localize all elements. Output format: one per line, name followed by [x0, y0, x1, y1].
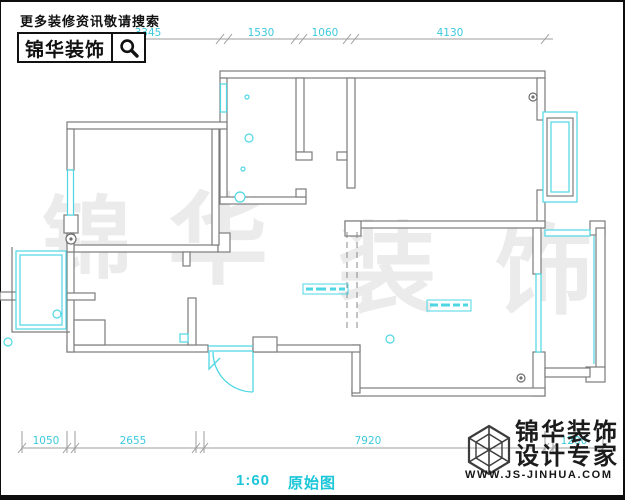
- search-tagline: 更多装修资讯敬请搜索: [20, 11, 160, 30]
- dim-value: 2655: [120, 435, 147, 447]
- search-icon[interactable]: [111, 34, 144, 61]
- floor-plan-walls: [0, 71, 605, 396]
- footer-brand-line1: 锦华装饰: [515, 421, 619, 445]
- footer-brand-line2: 设计专家: [515, 445, 619, 469]
- dim-value: 7920: [355, 435, 382, 447]
- dim-value: 1530: [248, 27, 275, 39]
- drawing-title: 原始图: [288, 472, 336, 493]
- cyan-annotation-label: [303, 284, 471, 311]
- footer-brand-text: 锦华装饰 设计专家: [515, 421, 619, 469]
- door-swing-arc: [213, 352, 253, 392]
- dashed-beam-lines: [347, 232, 357, 332]
- drawing-scale: 1:60: [236, 472, 270, 493]
- dim-value: 1050: [33, 435, 60, 447]
- drawing-caption: 1:60 原始图: [236, 472, 336, 493]
- footer-website-url[interactable]: WWW.JS-JINHUA.COM: [465, 469, 613, 481]
- dimension-labels-top: 3345 1530 1060 4130: [135, 27, 464, 39]
- floorplan-page: { "header": { "tagline": "更多装修资讯敬请搜索", "…: [0, 0, 625, 500]
- brand-name: 锦华装饰: [19, 34, 111, 61]
- entry-door: [208, 346, 253, 392]
- dim-value: 1060: [312, 27, 339, 39]
- brand-search-box[interactable]: 锦华装饰: [17, 32, 146, 63]
- dim-value: 4130: [437, 27, 464, 39]
